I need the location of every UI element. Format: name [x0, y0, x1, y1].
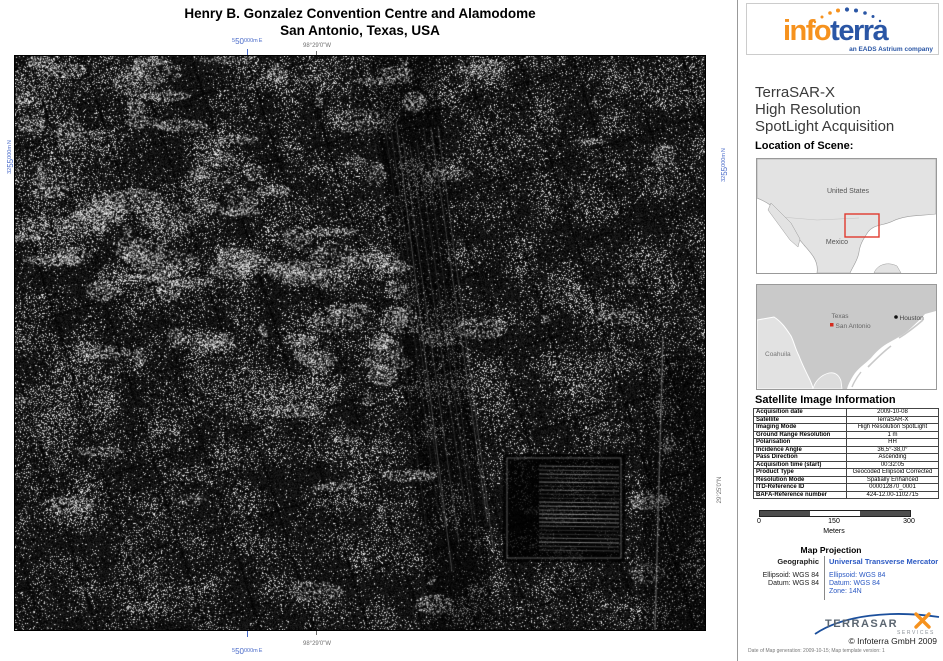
info-label: Pass Direction [754, 454, 847, 462]
table-row: Acquisition time (start)00:32:05 [754, 461, 939, 469]
detail-map-san-antonio-label: San Antonio [836, 323, 871, 330]
overview-map-us-label: United States [827, 188, 870, 195]
tsx-wordmark: TERRASAR [825, 618, 898, 630]
detail-map: Texas San Antonio Houston Coahuila [756, 284, 937, 390]
overview-map-graphic: United States Mexico [757, 159, 936, 273]
info-label: Polarisation [754, 439, 847, 447]
table-row: Imaging ModeHigh Resolution SpotLight [754, 424, 939, 432]
table-row: Resolution ModeSpatially Enhanced [754, 476, 939, 484]
location-heading: Location of Scene: [755, 140, 853, 152]
info-value: High Resolution SpotLight [847, 424, 939, 432]
scale-unit: Meters [759, 528, 909, 535]
terrasar-x-services-logo: TERRASAR SERVICES [813, 606, 941, 638]
info-value: TerraSAR-X [847, 416, 939, 424]
generation-note: Date of Map generation: 2009-10-15; Map … [748, 648, 885, 654]
utm-ellipsoid: Ellipsoid: WGS 84 [829, 572, 941, 580]
sar-image-frame [14, 55, 706, 631]
page-title: Henry B. Gonzalez Convention Centre and … [14, 6, 706, 21]
info-label: Resolution Mode [754, 476, 847, 484]
sar-image-canvas [15, 56, 705, 630]
infoterra-logo: infoterra an EADS Astrium company [746, 3, 939, 55]
geo-longitude-label-bottom: 98°29'0"W [303, 641, 331, 647]
info-label: BAFA-Reference number [754, 491, 847, 499]
info-label: Ground Range Resolution [754, 431, 847, 439]
projection-heading: Map Projection [746, 545, 916, 555]
page-subtitle: San Antonio, Texas, USA [14, 23, 706, 38]
info-value: 424-12.00-1102715 [847, 491, 939, 499]
info-value: 36,5°-38,0° [847, 446, 939, 454]
scale-label-middle: 150 [828, 518, 840, 525]
geographic-ellipsoid: Ellipsoid: WGS 84 [738, 572, 819, 580]
scale-label-start: 0 [757, 518, 761, 525]
info-value: HH [847, 439, 939, 447]
info-value: 2009-10-08 [847, 409, 939, 417]
infoterra-tagline: an EADS Astrium company [849, 46, 933, 53]
detail-map-houston-label: Houston [900, 315, 925, 322]
geo-latitude-label-right: 29°25'0"N [717, 477, 723, 504]
table-row: Pass DirectionAscending [754, 454, 939, 462]
copyright: © Infoterra GmbH 2009 [849, 636, 937, 646]
detail-map-coahuila-label: Coahuila [765, 351, 791, 358]
table-row: Product TypeGeocoded Ellipsoid Corrected [754, 469, 939, 477]
grid-easting-label-bottom: 550000mE [232, 646, 262, 656]
sat-info-table: Acquisition date2009-10-08 SatelliteTerr… [753, 408, 939, 499]
projection-geographic: Geographic Ellipsoid: WGS 84 Datum: WGS … [738, 558, 819, 588]
geo-longitude-label-top: 98°29'0"W [303, 43, 331, 49]
sat-info-heading: Satellite Image Information [755, 394, 896, 406]
table-row: PolarisationHH [754, 439, 939, 447]
table-row: BAFA-Reference number424-12.00-1102715 [754, 491, 939, 499]
info-value: Spatially Enhanced [847, 476, 939, 484]
info-label: Acquisition time (start) [754, 461, 847, 469]
table-row: Incidence Angle36,5°-38,0° [754, 446, 939, 454]
info-value: Ascending [847, 454, 939, 462]
info-value: 000012870_0001 [847, 484, 939, 492]
info-label: Product Type [754, 469, 847, 477]
houston-marker [894, 315, 898, 319]
table-row: Ground Range Resolution1 m [754, 431, 939, 439]
product-title: TerraSAR-X High Resolution SpotLight Acq… [755, 84, 894, 135]
geographic-datum: Datum: WGS 84 [738, 580, 819, 588]
utm-zone: Zone: 14N [829, 588, 941, 596]
geographic-heading: Geographic [738, 558, 819, 566]
info-label: Incidence Angle [754, 446, 847, 454]
scale-label-end: 300 [903, 518, 915, 525]
grid-tick [247, 631, 248, 637]
sidebar: infoterra an EADS Astrium company TerraS… [737, 0, 943, 661]
utm-datum: Datum: WGS 84 [829, 580, 941, 588]
info-label: Satellite [754, 416, 847, 424]
scale-bar [759, 510, 911, 517]
info-value: Geocoded Ellipsoid Corrected [847, 469, 939, 477]
san-antonio-marker [830, 323, 834, 327]
utm-heading: Universal Transverse Mercator [829, 558, 941, 566]
grid-northing-label-right: 3255000mN [719, 148, 729, 182]
infoterra-wordmark: infoterra [783, 16, 887, 46]
overview-map: United States Mexico [756, 158, 937, 274]
overview-map-mexico-label: Mexico [826, 239, 848, 246]
info-label: Imaging Mode [754, 424, 847, 432]
info-label: Acquisition date [754, 409, 847, 417]
grid-easting-label-top: 550000mE [232, 36, 262, 46]
table-row: SatelliteTerraSAR-X [754, 416, 939, 424]
info-value: 00:32:05 [847, 461, 939, 469]
projection-utm: Universal Transverse Mercator Ellipsoid:… [829, 558, 941, 596]
projection-divider [824, 556, 825, 600]
info-label: ITD-Reference ID [754, 484, 847, 492]
info-value: 1 m [847, 431, 939, 439]
map-sheet: Henry B. Gonzalez Convention Centre and … [0, 0, 943, 661]
detail-map-texas-label: Texas [832, 313, 850, 320]
detail-map-graphic: Texas San Antonio Houston Coahuila [757, 285, 936, 389]
table-row: ITD-Reference ID000012870_0001 [754, 484, 939, 492]
geo-tick [316, 631, 317, 635]
table-row: Acquisition date2009-10-08 [754, 409, 939, 417]
